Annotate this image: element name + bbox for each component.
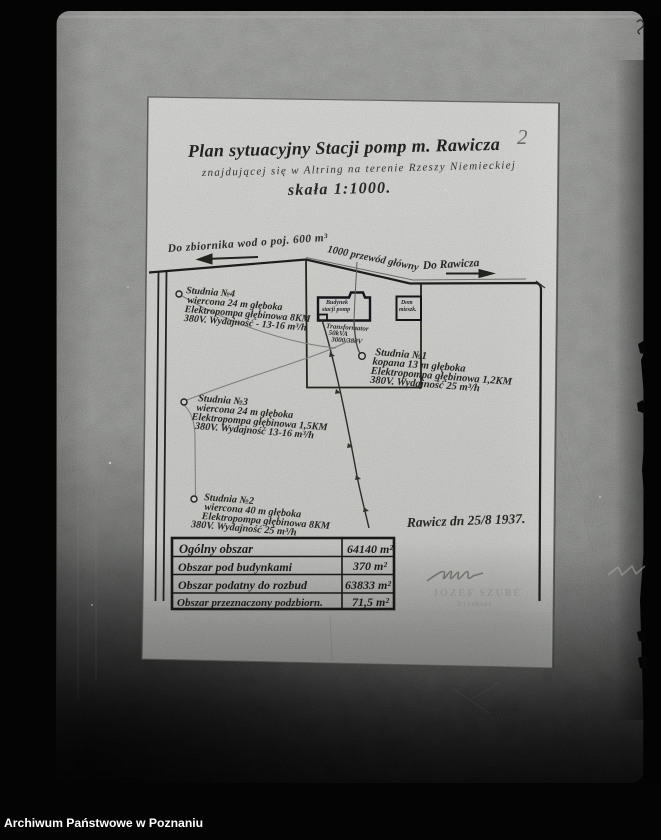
svg-text:2: 2 [517, 125, 528, 149]
svg-text:mieszk.: mieszk. [399, 307, 417, 313]
svg-text:Dom: Dom [400, 300, 413, 306]
svg-text:Budynek: Budynek [325, 300, 348, 306]
svg-text:stacji pomp: stacji pomp [321, 307, 350, 313]
svg-text:skała 1:1000.: skała 1:1000. [287, 179, 392, 199]
svg-text:Archiwum Państwowe w Poznaniu: Archiwum Państwowe w Poznaniu [4, 816, 203, 830]
